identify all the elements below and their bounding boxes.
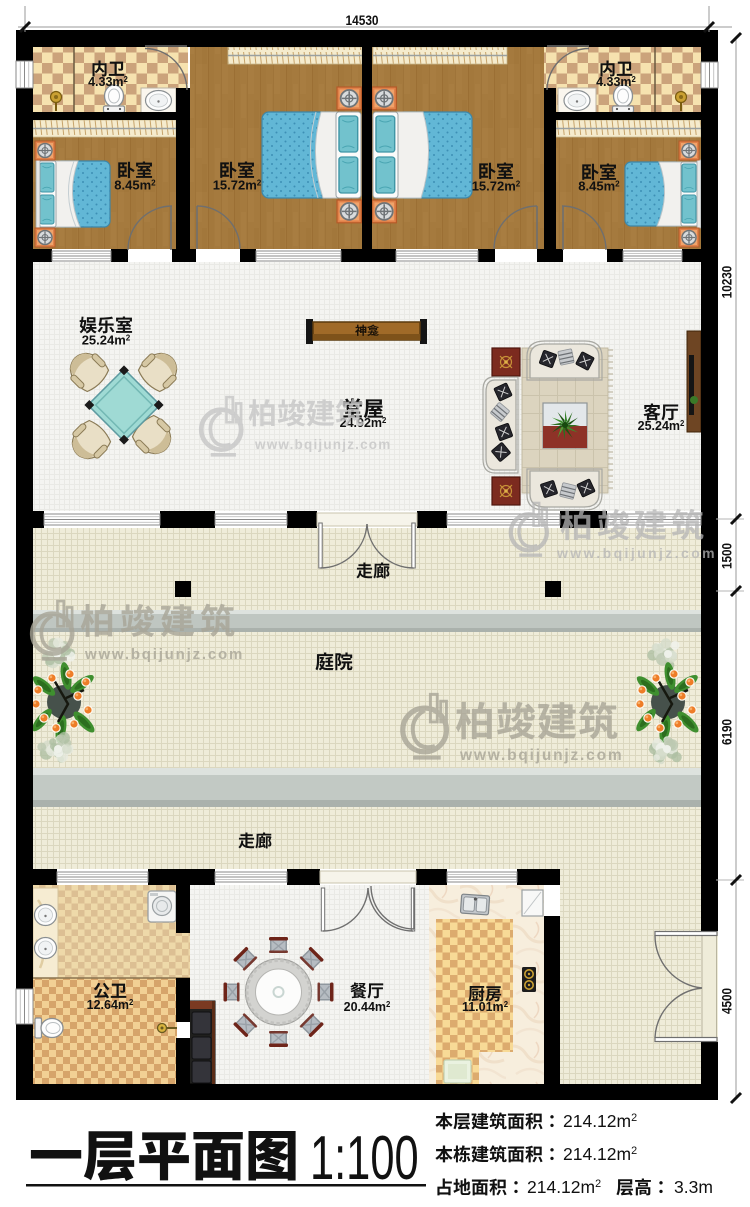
svg-text:8.45m2: 8.45m2: [114, 178, 156, 193]
svg-text:11.01m2: 11.01m2: [462, 1000, 509, 1014]
svg-text:15.72m2: 15.72m2: [472, 179, 521, 194]
svg-text:10230: 10230: [719, 266, 735, 299]
svg-text:www.bqijunjz.com: www.bqijunjz.com: [459, 747, 623, 764]
svg-text:214.12m2: 214.12m2: [563, 1144, 637, 1164]
svg-text:14530: 14530: [345, 12, 378, 28]
svg-text:www.bqijunjz.com: www.bqijunjz.com: [84, 646, 244, 663]
svg-text:25.24m2: 25.24m2: [638, 419, 685, 433]
svg-text:15.72m2: 15.72m2: [213, 178, 262, 193]
svg-text:www.bqijunjz.com: www.bqijunjz.com: [556, 545, 717, 561]
svg-text:www.bqijunjz.com: www.bqijunjz.com: [254, 437, 391, 452]
svg-text:8.45m2: 8.45m2: [578, 179, 620, 194]
svg-text:214.12m2: 214.12m2: [563, 1111, 637, 1131]
svg-text:12.64m2: 12.64m2: [87, 998, 134, 1012]
svg-text:20.44m2: 20.44m2: [344, 1000, 391, 1014]
svg-text:4.33m2: 4.33m2: [596, 75, 636, 89]
svg-text:25.24m2: 25.24m2: [82, 333, 131, 348]
svg-text:214.12m2: 214.12m2: [527, 1177, 601, 1197]
svg-text:1500: 1500: [719, 543, 735, 569]
svg-text:3.3m: 3.3m: [674, 1177, 713, 1197]
svg-text:4500: 4500: [719, 988, 735, 1014]
svg-text:6190: 6190: [719, 719, 735, 745]
svg-text:4.33m2: 4.33m2: [88, 75, 128, 89]
svg-text:1:100: 1:100: [310, 1125, 419, 1193]
